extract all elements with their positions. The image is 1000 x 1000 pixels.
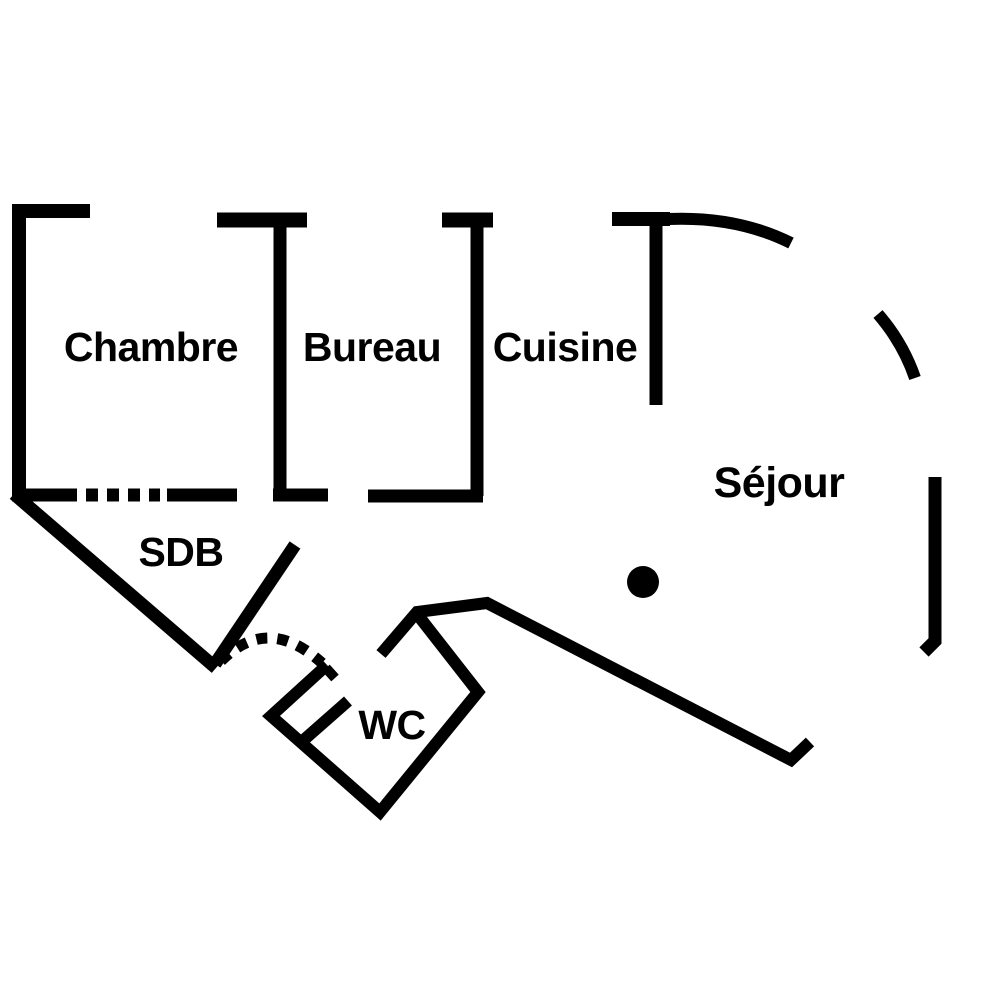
sejour-right-wall <box>924 477 935 652</box>
room-label-wc: WC <box>358 702 425 748</box>
room-label-chambre: Chambre <box>64 324 238 370</box>
room-label-bureau: Bureau <box>303 324 441 370</box>
room-labels-group: Chambre Bureau Cuisine Séjour SDB WC <box>64 324 845 748</box>
room-label-sejour: Séjour <box>714 459 846 507</box>
sdb-diagonal-wall <box>14 494 216 668</box>
walls-group <box>12 211 935 812</box>
corridor-diagonal-wall <box>215 545 295 664</box>
floorplan-canvas: Chambre Bureau Cuisine Séjour SDB WC <box>0 0 1000 1000</box>
wc-door-leaf <box>298 701 348 745</box>
room-label-sdb: SDB <box>138 529 223 575</box>
sejour-curved-wall-upper <box>668 219 791 243</box>
floorplan-page: Chambre Bureau Cuisine Séjour SDB WC <box>0 0 1000 1000</box>
room-label-cuisine: Cuisine <box>493 324 638 370</box>
sejour-curved-wall-middle <box>878 314 915 378</box>
wc-door-jamb-tick <box>326 668 335 678</box>
furniture-dot <box>627 566 659 598</box>
